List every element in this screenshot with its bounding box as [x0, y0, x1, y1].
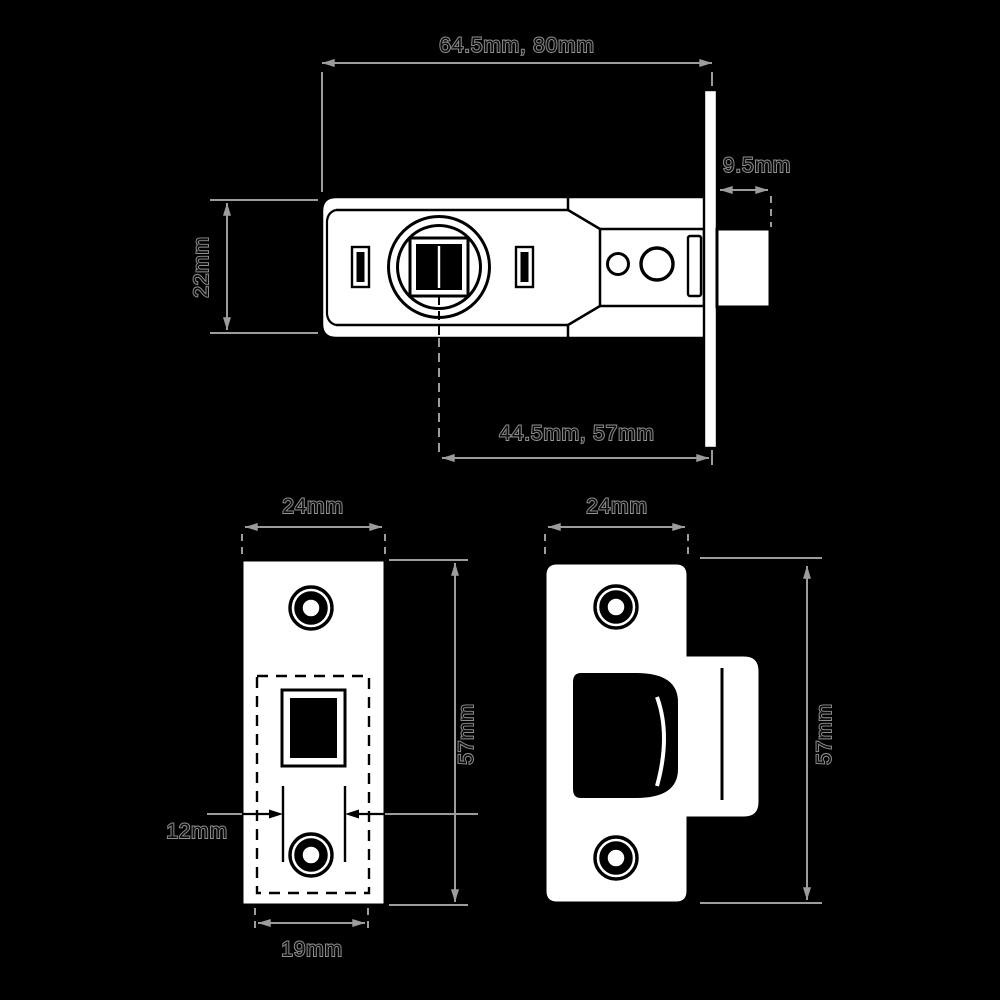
faceplate-screw-hole-top [290, 587, 332, 629]
dim-bolt-projection-label: 9.5mm [723, 154, 791, 177]
dim-bolt-projection: 9.5mm [720, 154, 791, 227]
dim-backset: 44.5mm, 57mm [442, 422, 712, 465]
dim-case-height-label: 22mm [190, 236, 213, 298]
dim-case-width-label: 19mm [281, 938, 343, 961]
diagram-canvas: 64.5mm, 80mm 9.5mm 22mm 44.5mm, 57mm [0, 0, 1000, 1000]
dim-follower-width-label: 12mm [166, 820, 228, 843]
latch-bolt [717, 229, 770, 307]
dim-case-height: 22mm [190, 200, 318, 333]
dim-faceplate-height: 57mm [389, 560, 478, 905]
latch-dimension-diagram: 64.5mm, 80mm 9.5mm 22mm 44.5mm, 57mm [0, 0, 1000, 1000]
barrel-large-hole [641, 248, 673, 280]
dim-faceplate-width: 24mm [242, 495, 385, 556]
dim-faceplate-width-label: 24mm [282, 495, 344, 518]
dim-overall-length: 64.5mm, 80mm [322, 34, 712, 192]
dim-strike-width: 24mm [545, 495, 688, 556]
strike-screw-hole-top [595, 586, 637, 628]
dim-strike-height-label: 57mm [813, 703, 836, 765]
latch-side-view: 64.5mm, 80mm 9.5mm 22mm 44.5mm, 57mm [190, 34, 791, 465]
dim-backset-label: 44.5mm, 57mm [499, 422, 654, 445]
strike-plate-view: 24mm 57mm [545, 495, 836, 903]
dim-overall-length-label: 64.5mm, 80mm [439, 34, 594, 57]
faceplate-front-view: 24mm 57mm 12mm 19mm [166, 495, 478, 961]
dim-faceplate-height-label: 57mm [455, 703, 478, 765]
strike-screw-hole-bottom [595, 837, 637, 879]
case-slot-right [516, 247, 533, 287]
faceplate-edge-bar [704, 90, 717, 448]
barrel-end-slot [688, 236, 701, 296]
barrel-small-hole [608, 254, 629, 275]
dim-case-width: 19mm [255, 908, 368, 961]
case-slot-left [352, 247, 369, 287]
dim-strike-width-label: 24mm [586, 495, 648, 518]
follower-square-hole [290, 698, 337, 758]
faceplate-screw-hole-bottom [290, 834, 332, 876]
